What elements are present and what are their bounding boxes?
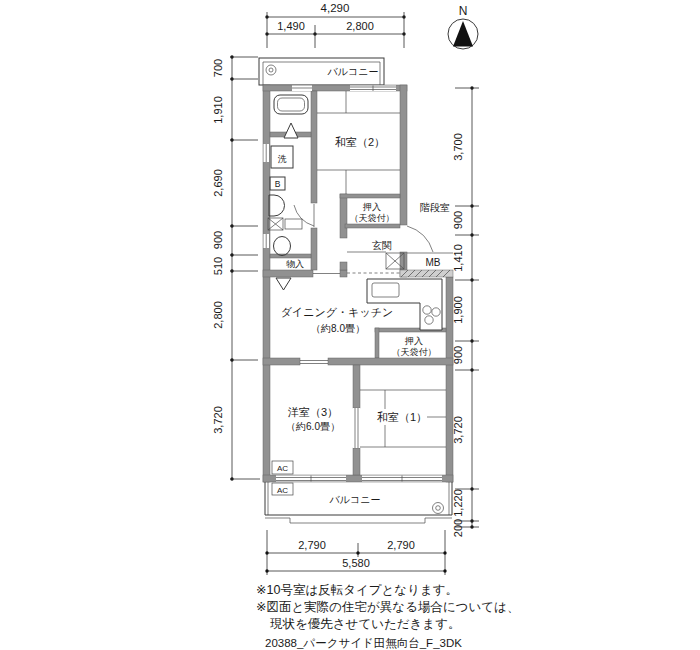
genkan-label: 玄関 — [372, 240, 392, 251]
closet-upper-note: （天袋付） — [350, 213, 395, 223]
balcony-top: バルコニー — [259, 58, 384, 85]
dimension-bottom: 2,790 2,790 5,580 — [265, 530, 446, 575]
dim-left-1: 1,910 — [212, 96, 224, 124]
genkan-entrance: 玄関 — [347, 226, 433, 269]
dim-right-1: 900 — [452, 211, 464, 229]
dim-right-3: 1,900 — [452, 296, 464, 324]
note-line2: ※図面と実際の住宅が異なる場合については、 — [256, 600, 519, 614]
entrance-door-arc — [407, 226, 433, 252]
monoire-door-icon — [276, 278, 291, 290]
balcony-bottom-label: バルコニー — [329, 494, 381, 505]
north-arrow: N — [448, 4, 478, 49]
closet-lower: 押入 （天袋付） — [392, 336, 437, 357]
mb-label: MB — [426, 257, 441, 268]
dim-top-left: 1,490 — [277, 20, 305, 32]
hatched-wall — [400, 270, 453, 277]
dk-label: ダイニング・キッチン — [281, 306, 393, 318]
youshitsu3-label: 洋室（3） — [287, 406, 338, 418]
note-line3: 現状を優先させていただきます。 — [270, 617, 460, 631]
closet-lower-note: （天袋付） — [392, 347, 437, 357]
dim-left-5: 2,800 — [212, 301, 224, 329]
washroom-door — [294, 204, 314, 227]
room-washitsu1: 和室（1） — [353, 390, 446, 448]
dim-right-4: 900 — [452, 346, 464, 364]
north-label: N — [459, 4, 468, 18]
ac-label-balcony: AC — [277, 486, 288, 495]
dim-right-0: 3,700 — [452, 133, 464, 161]
dim-right-7: 200 — [452, 519, 464, 537]
youshitsu3-size: （約6.0畳） — [286, 421, 340, 432]
dim-bottom-left: 2,790 — [298, 539, 326, 551]
dk-size-label: （約8.0畳） — [311, 323, 365, 334]
dimension-top: 4,290 1,490 2,800 — [265, 2, 405, 48]
bath-door-icon — [284, 123, 298, 138]
dim-right-2: 1,410 — [452, 244, 464, 272]
plan-footer-id: 20388_パークサイド田無向台_F_3DK — [265, 637, 462, 649]
floorplan-svg: N 4,290 1,490 2,800 700 1,910 2,690 900 — [0, 0, 700, 650]
closet-lower-label: 押入 — [404, 336, 423, 346]
washitsu1-label: 和室（1） — [377, 411, 427, 423]
dim-left-2: 2,690 — [212, 169, 224, 197]
washitsu2-label: 和室（2） — [335, 136, 385, 148]
dim-top-total: 4,290 — [321, 2, 350, 14]
note-line1: ※10号室は反転タイプとなります。 — [256, 583, 458, 597]
balcony-top-label: バルコニー — [327, 66, 379, 77]
dim-left-6: 3,720 — [212, 406, 224, 434]
kitchen-counter — [367, 279, 442, 330]
dim-left-0: 700 — [212, 59, 224, 77]
notes: ※10号室は反転タイプとなります。 ※図面と実際の住宅が異なる場合については、 … — [256, 583, 519, 649]
dim-left-3: 900 — [212, 231, 224, 249]
floorplan-canvas: N 4,290 1,490 2,800 700 1,910 2,690 900 — [0, 0, 700, 650]
balcony-bottom: AC バルコニー — [265, 482, 452, 523]
laundry-label: 洗 — [278, 154, 287, 164]
bathroom — [274, 95, 308, 138]
dim-bottom-total: 5,580 — [342, 557, 370, 569]
toilet — [274, 237, 291, 256]
dim-right-6: 1,220 — [452, 489, 464, 517]
laundry-space: 洗 B — [270, 146, 293, 190]
bath-mark-label: B — [275, 179, 281, 189]
monoire-label: 物入 — [286, 259, 304, 269]
dim-bottom-right: 2,790 — [387, 539, 415, 551]
ac-label-room: AC — [277, 464, 288, 473]
dimension-right: 3,700 900 1,410 1,900 900 3,720 1,220 20… — [452, 86, 479, 537]
stairwell: 階段室 MB — [407, 202, 453, 268]
dimension-left: 700 1,910 2,690 900 510 2,800 3,720 — [212, 55, 260, 480]
stairwell-label: 階段室 — [420, 202, 450, 213]
dim-left-4: 510 — [212, 257, 224, 275]
room-washitsu2: 和室（2） — [317, 91, 400, 194]
room-youshitsu3: 洋室（3） （約6.0畳） AC — [272, 406, 340, 474]
compass-needle-icon — [453, 21, 473, 47]
dim-top-right: 2,800 — [346, 20, 374, 32]
closet-upper-label: 押入 — [362, 202, 381, 212]
closet-upper: 押入 （天袋付） — [350, 202, 395, 223]
dim-right-5: 3,720 — [452, 416, 464, 444]
